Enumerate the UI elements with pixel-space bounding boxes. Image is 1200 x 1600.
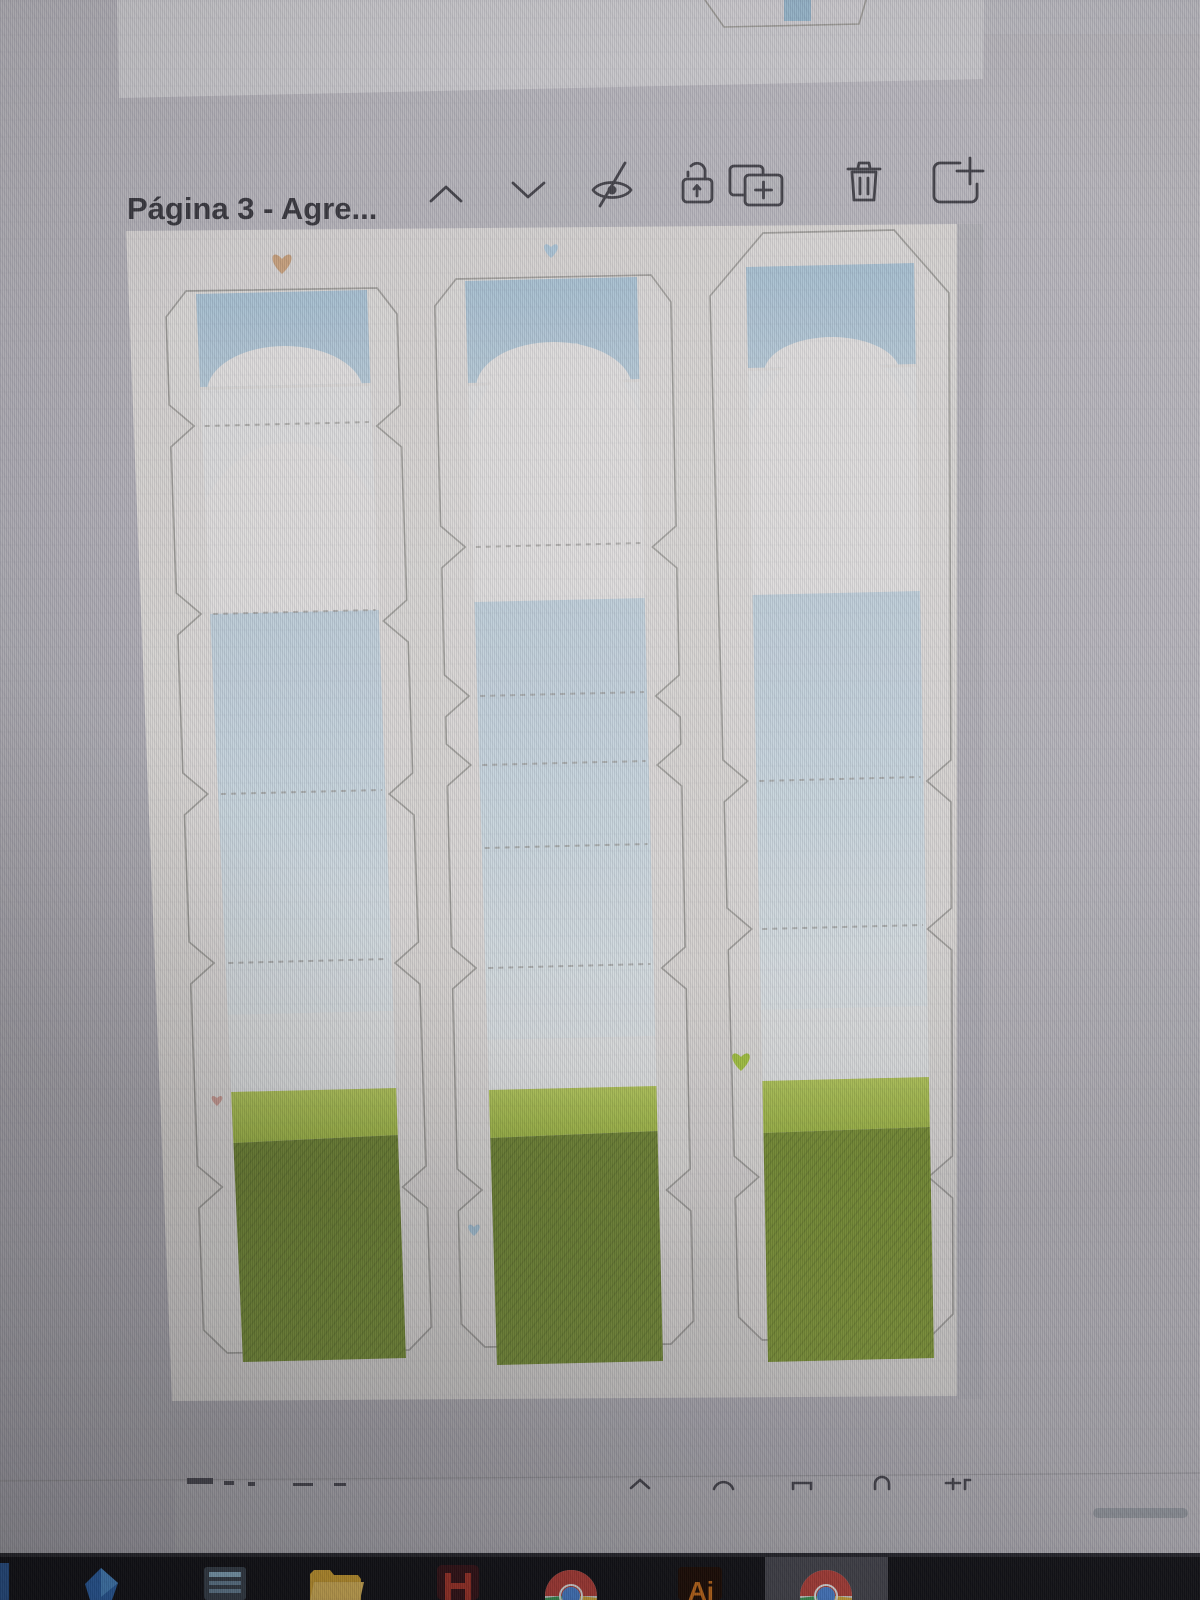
svg-text:Página 3 - Agre...: Página 3 - Agre... — [127, 191, 377, 226]
svg-text:Ai: Ai — [688, 1576, 714, 1600]
